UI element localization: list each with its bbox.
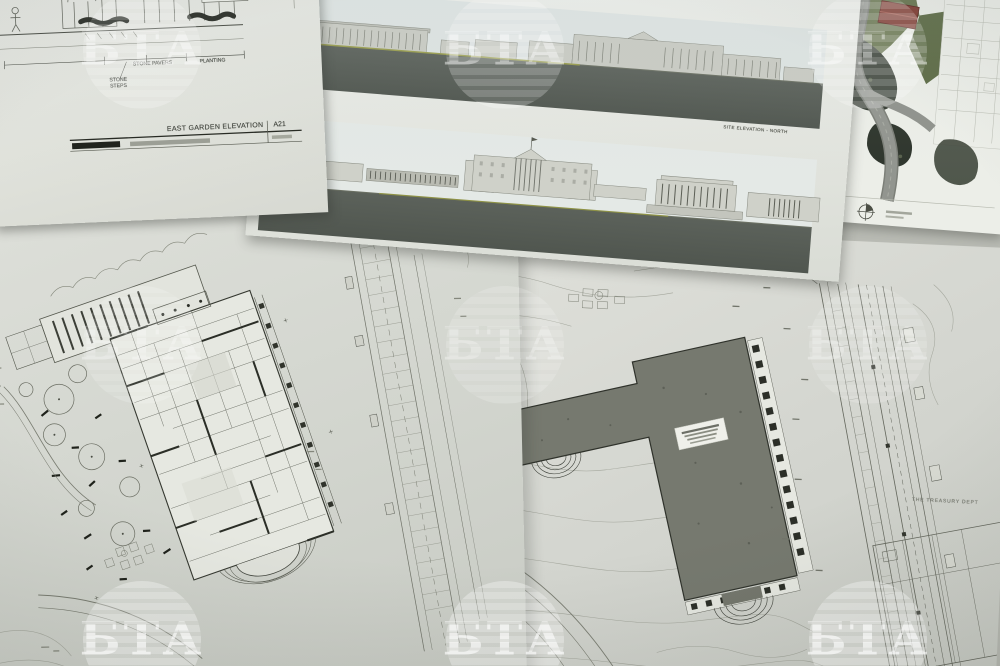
building-plan-white xyxy=(933,0,1000,150)
parterre-garden xyxy=(568,288,625,310)
floor-plan-drawing xyxy=(0,197,527,666)
photograph-of-architectural-drawings: THE TREASURY DEPT xyxy=(0,0,1000,666)
avenue-corridor xyxy=(337,222,492,654)
background-structure-lines xyxy=(34,0,294,20)
architect-credit-text xyxy=(130,138,210,146)
paver-hatch xyxy=(85,31,137,39)
sheet-site-elevations: SITE ELEVATION - NORTH xyxy=(245,0,861,282)
scale-note-bar xyxy=(886,210,912,215)
elevation-renderings xyxy=(245,0,861,282)
sheet-number: A21 xyxy=(273,121,286,130)
street-corridor xyxy=(762,237,979,666)
mansion-plan xyxy=(0,213,392,666)
treasury-building-outline xyxy=(873,519,1000,666)
label-stone-steps: STONE STEPS xyxy=(101,77,135,90)
scale-figure xyxy=(10,7,21,32)
sheet-floor-plan xyxy=(0,197,527,666)
title-block xyxy=(69,119,302,151)
garden-trellis xyxy=(138,0,240,23)
flower-beds xyxy=(102,537,156,574)
hedge-scribbles xyxy=(81,13,234,24)
north-arrow-icon xyxy=(856,202,875,221)
title-block-logo xyxy=(72,141,120,149)
callout-box xyxy=(201,0,248,2)
garden-elevation-sketch xyxy=(0,0,328,227)
sheet-east-garden-elevation: EAST GARDEN ELEVATION A21 STONE PAVERS P… xyxy=(0,0,328,227)
